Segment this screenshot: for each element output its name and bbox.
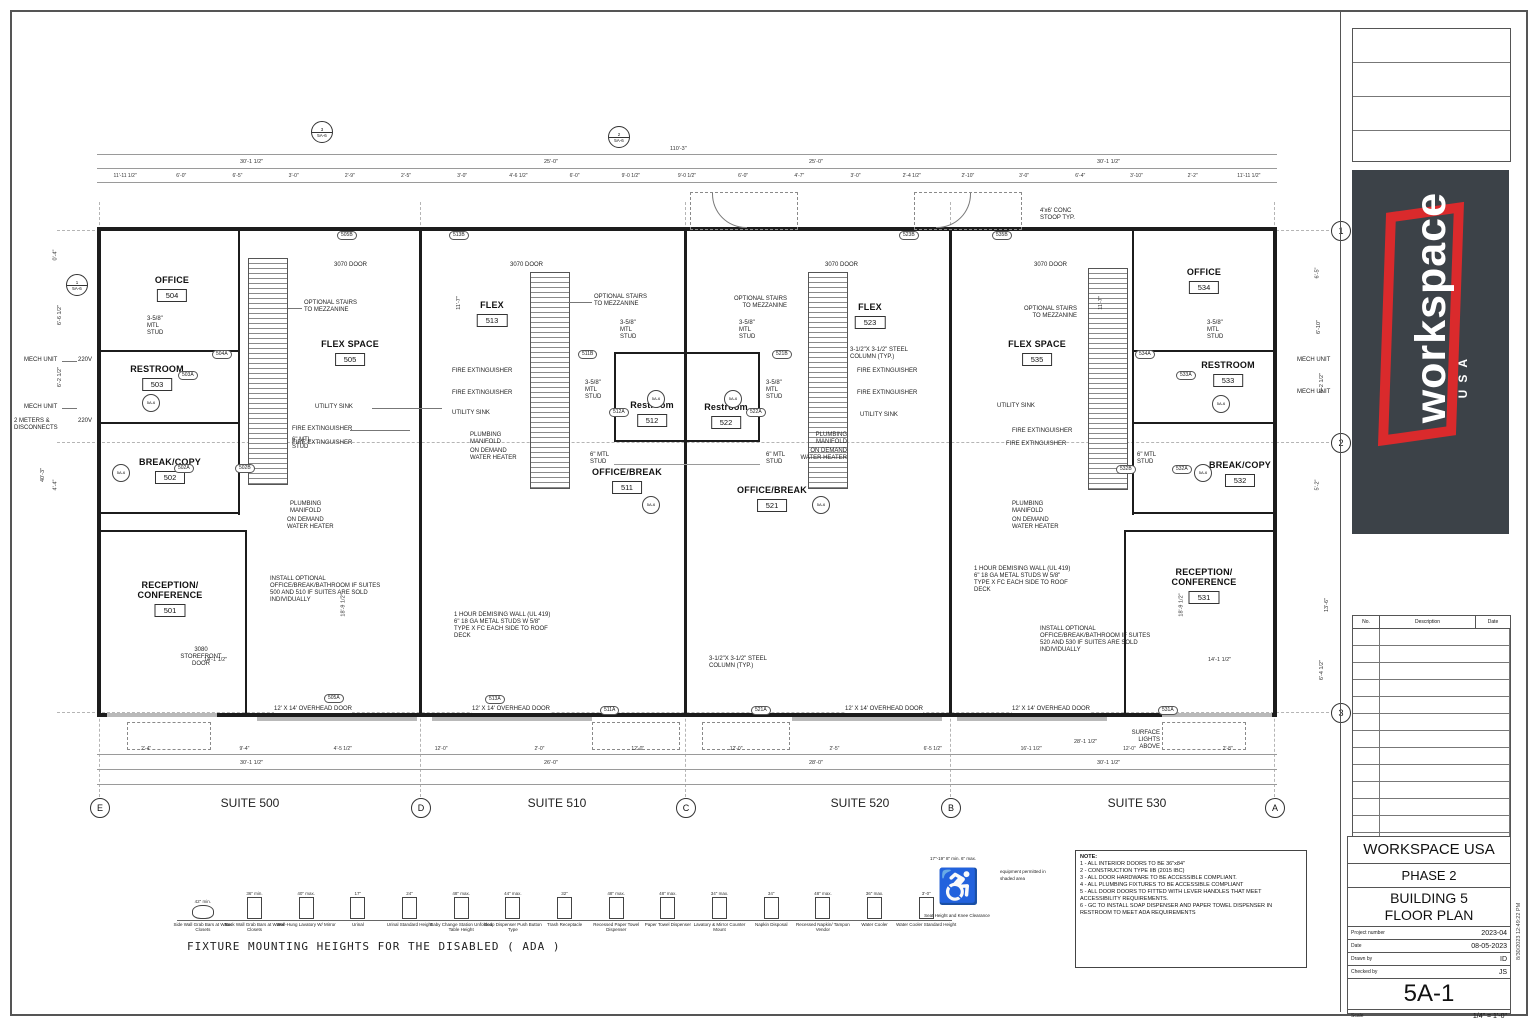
ada-fixture-dim: 40" max. [280,891,332,896]
callout-mtl-stud: 3-5/8" MTL STUD [1207,320,1223,341]
fixture-icon [867,897,882,919]
room-flexspace-535: FLEX SPACE 535 [1008,339,1066,367]
room-number: 535 [1022,353,1053,366]
room-number: 505 [335,353,366,366]
dim-bottom-tier2: 30'-1 1/2" [240,760,263,766]
dim-interior: 18'-9 1/2" [1179,593,1185,616]
room-name: RESTROOM [130,364,184,374]
field-value: ID [1500,956,1507,963]
demising-wall-b [949,227,952,715]
fixture-icon [815,897,830,919]
ada-fixture: 24" Urinal Standard Height [384,891,436,920]
callout-mech-unit: MECH UNIT [1297,389,1333,396]
section-marker-1: 1 5A-6 [66,274,88,296]
dim-bottom-tier2: 30'-1 1/2" [1097,760,1120,766]
dim-left: 6'-2 1/2" [57,367,63,387]
door-tag: 513A [485,695,505,704]
dim-line [97,769,1277,770]
elevation-marker: 5A-6 [812,496,830,514]
elevation-marker: 5A-6 [1212,395,1230,413]
room-number: 511 [612,481,642,494]
stamp-row [1353,131,1510,164]
section-sheet-ref: 5A-6 [67,286,87,291]
sheet-title-line2: FLOOR PLAN [1348,907,1510,924]
revision-row [1353,765,1510,782]
fixture-icon [660,897,675,919]
revision-row [1353,646,1510,663]
dim-value: 12'-0" [392,746,490,752]
callout-mtl-stud: 3-5/8" MTL STUD [147,316,163,337]
callout-fire-extinguisher: FIRE EXTINGUISHER [452,390,512,397]
dim-value: 3'-0" [827,173,883,179]
callout-mtl-stud-6: 6" MTL STUD [766,452,785,466]
door-tag: 505A [324,694,344,703]
fixture-icon [247,897,262,919]
grid-bubble-col-B: B [941,798,961,818]
dim-value: 2'-5" [378,173,434,179]
field-value: 1/4" = 1'-0" [1473,1013,1507,1020]
callout-mtl-stud: 3-5/8" MTL STUD [766,380,782,401]
dim-right: 13'-6" [1324,598,1330,612]
callout-water-heater: ON DEMAND WATER HEATER [1012,517,1059,531]
stamp-row [1353,63,1510,97]
callout-water-heater: ON DEMAND WATER HEATER [794,448,847,462]
leader-line [62,408,77,409]
dim-value: 3'-10" [1108,173,1164,179]
fixture-icon [505,897,520,919]
field-value: 2023-04 [1481,930,1507,937]
room-number: 501 [155,604,186,617]
room-name: FLEX [477,300,508,310]
door-tag: 511A [600,706,619,715]
room-name: OFFICE [155,275,189,285]
overhead-door-seg [257,717,417,721]
dim-value: 3'-0" [266,173,322,179]
room-flex-513: FLEX 513 [477,300,508,328]
dim-value: 4'-5 1/2" [294,746,392,752]
ada-fixture-dim: 48" max. [590,891,642,896]
callout-mtl-stud-6: 6" MTL STUD [590,452,609,466]
dim-left: 4'-4" [52,480,58,491]
room-officebreak-511: OFFICE/BREAK 511 [592,467,662,495]
fixture-icon [454,897,469,919]
dim-value: 6'-5" [209,173,265,179]
callout-3070-door: 3070 DOOR [334,262,367,269]
dim-value: 12'-0" [687,746,785,752]
callout-overhead-door: 12' X 14' OVERHEAD DOOR [274,706,352,713]
door-tag: 521A [751,706,771,715]
general-notes-box: NOTE: 1 - ALL INTERIOR DOORS TO BE 36"x8… [1075,850,1307,968]
company-logo: workspace USA [1352,170,1509,534]
elev-ref: 5A-6 [1195,471,1211,476]
sheet-title: BUILDING 5 FLOOR PLAN [1348,888,1510,927]
room-name: FLEX [855,302,886,312]
field-label: Project number [1351,930,1385,936]
door-tag: 523B [899,231,919,240]
callout-3070-door: 3070 DOOR [1034,262,1067,269]
sheet-title-line1: BUILDING 5 [1348,890,1510,907]
door-tag: 521B [772,350,792,359]
room-restroom-503: RESTROOM 503 [130,364,184,392]
dim-value: 2'-4" [97,746,195,752]
room-number: 503 [142,378,173,391]
dim-overall-top: 110'-3" [670,146,687,152]
dim-value: 6'-4" [1052,173,1108,179]
revision-row [1353,663,1510,680]
revision-row [1353,680,1510,697]
ada-fixture-label: Water Cooler Standard Height [894,922,958,927]
fixture-icon [350,897,365,919]
callout-3070-door: 3070 DOOR [802,262,858,269]
ada-fixture: 42" min. Side Wall Grab Bars at Water Cl… [177,899,229,920]
callout-mtl-stud: 3-5/8" MTL STUD [585,380,601,401]
counter-line [614,464,760,465]
elevation-marker: 5A-6 [1194,464,1212,482]
stairs-suite-510 [530,272,570,489]
ada-fixture-dim: 42" min. [177,899,229,904]
note-item: 2 - CONSTRUCTION TYPE IIB (2015 IBC) [1080,868,1302,875]
callout-install-optional: INSTALL OPTIONAL OFFICE/BREAK/BATHROOM I… [270,576,395,604]
dim-line [97,168,1277,169]
room-name: FLEX SPACE [1008,339,1066,349]
dim-tier2: 30'-1 1/2" [1097,159,1120,165]
door-tag: 503A [178,371,198,380]
ada-fixture-dim: 44" max. [487,891,539,896]
dim-value: 2'-9" [322,173,378,179]
dim-interior: 14'-1 1/2" [1208,657,1231,663]
ada-fixture: 40" max. Wall-Hung Lavatory W/ Mirror [280,891,332,920]
field-checked-by: Checked by JS [1348,966,1510,979]
callout-mech-unit: MECH UNIT [24,404,60,411]
door-tag: 513B [449,231,469,240]
door-tag: 522A [746,408,766,417]
elev-ref: 5A-6 [648,397,664,402]
dim-right: 6'-5" [1314,268,1320,279]
field-date: Date 08-05-2023 [1348,940,1510,953]
callout-plumbing-manifold: PLUMBING MANIFOLD [470,432,501,446]
dim-left: 0'-4" [52,250,58,261]
dim-row-bottom-sub: 2'-4"9'-4"4'-5 1/2"12'-0"2'-0"12'-0"12'-… [97,746,1277,752]
callout-steel-column: 3-1/2"X 3-1/2" STEEL COLUMN (TYP.) [850,347,908,361]
ada-fixture-dim: 36" min. [229,891,281,896]
elevation-marker: 5A-6 [112,464,130,482]
elev-ref: 5A-6 [113,471,129,476]
fixture-icon [299,897,314,919]
rev-col-date: Date [1476,616,1510,628]
dim-value: 11'-11 1/2" [97,173,153,179]
section-marker-2: 2 5A-6 [608,126,630,148]
room-number: 534 [1189,281,1220,294]
section-sheet-ref: 5A-6 [312,133,332,138]
overhead-door-seg [432,717,592,721]
elev-ref: 5A-6 [1213,402,1229,407]
revision-row [1353,714,1510,731]
ada-fixture-dim: 17" [332,891,384,896]
door-tag: 534A [1135,350,1155,359]
room-number: 523 [855,316,886,329]
revision-row [1353,731,1510,748]
dim-value: 4'-6 1/2" [490,173,546,179]
dim-value: 6'-0" [153,173,209,179]
door-tag: 505B [337,231,357,240]
elev-ref: 5A-6 [643,503,659,508]
callout-220v: 220V [78,357,92,364]
callout-utility-sink: UTILITY SINK [860,412,898,419]
revision-row [1353,697,1510,714]
callout-plumbing-manifold: PLUMBING MANIFOLD [802,432,847,446]
dim-left: 6'-6 1/2" [57,305,63,325]
door-tag: 532A [1172,465,1192,474]
revision-row [1353,799,1510,816]
callout-water-heater: ON DEMAND WATER HEATER [287,517,334,531]
ada-fixture: 48" max. Baby Change Station Unfolded Ta… [435,891,487,920]
dim-value: 3'-0" [996,173,1052,179]
dim-value: 11'-11 1/2" [1221,173,1277,179]
dim-bottom-tier2: 26'-0" [544,760,558,766]
callout-mtl-stud-6: 6" MTL STUD [292,437,311,451]
grid-bubble-col-C: C [676,798,696,818]
ada-fixture-dim: 34" [745,891,797,896]
ada-fixture: 34" max. Lavatory & Mirror Counter Mount [694,891,746,920]
door-tag: 531A [1158,706,1178,715]
stamp-row [1353,97,1510,131]
dim-tier2: 25'-0" [544,159,558,165]
callout-overhead-door: 12' X 14' OVERHEAD DOOR [472,706,550,713]
room-officebreak-521: OFFICE/BREAK 521 [737,485,807,513]
dim-interior: 11'-7" [456,296,462,310]
ada-fixture: 48" max. Recessed Napkin/ Tampon Vendor [797,891,849,920]
suite-label-510: SUITE 510 [528,796,587,810]
dim-value: 9'-0 1/2" [659,173,715,179]
dim-value: 3'-0" [434,173,490,179]
callout-overhead-door: 12' X 14' OVERHEAD DOOR [1012,706,1090,713]
door-tag: 502A [174,464,194,473]
dim-line [97,754,1277,755]
room-number: 504 [157,289,188,302]
wall-left [97,227,101,717]
callout-fire-extinguisher: FIRE EXTINGUISHER [857,368,917,375]
suite-label-520: SUITE 520 [831,796,890,810]
revision-row [1353,816,1510,833]
dim-value: 2'-8" [1179,746,1277,752]
leader-line [62,361,77,362]
callout-mech-unit: MECH UNIT [24,357,60,364]
room-flexspace-505: FLEX SPACE 505 [321,339,379,367]
ada-fixture-dim: 48" max. [435,891,487,896]
callout-steel-column: 3-1/2"X 3-1/2" STEEL COLUMN (TYP.) [709,656,767,670]
ada-fixture: 17" Urinal [332,891,384,920]
notes-title: NOTE: [1080,854,1302,861]
door-tag: 511B [578,350,597,359]
elev-ref: 5A-6 [143,401,159,406]
grid-bubble-col-A: A [1265,798,1285,818]
elev-ref: 5A-6 [725,397,741,402]
room-restroom-533: RESTROOM 533 [1201,360,1255,388]
room-name: BREAK/COPY [1209,460,1271,470]
ada-fixture-dim: 34" max. [694,891,746,896]
callout-fire-extinguisher: FIRE EXTINGUISHER [452,368,512,375]
room-name: OFFICE/BREAK [737,485,807,495]
ada-fixture: 32" Trash Receptacle [539,891,591,920]
dim-value: 9'-0 1/2" [603,173,659,179]
wall-int [614,352,616,442]
ada-fixture: 48" max. Recessed Paper Towel Dispenser [590,891,642,920]
callout-mtl-stud-6: 6" MTL STUD [1137,452,1156,466]
sheet-number: 5A-1 [1348,979,1510,1010]
firm-name: WORKSPACE USA [1348,837,1510,864]
room-name: OFFICE [1187,267,1221,277]
fixture-icon [764,897,779,919]
callout-utility-sink: UTILITY SINK [315,404,353,411]
wall-int [614,352,760,354]
callout-fire-extinguisher: FIRE EXTINGUISHER [1006,441,1066,448]
suite-label-530: SUITE 530 [1108,796,1167,810]
dim-left: 40'-3" [40,468,46,482]
section-sheet-ref: 5A-6 [609,138,629,143]
callout-3070-door: 3070 DOOR [510,262,543,269]
callout-water-heater: ON DEMAND WATER HEATER [470,448,517,462]
dim-value: 2'-10" [940,173,996,179]
ada-fixture: 44" max. Soap Dispenser Push Button Type [487,891,539,920]
leader-line [288,308,302,309]
callout-optional-stairs: OPTIONAL STAIRS TO MEZZANINE [717,296,787,310]
dim-interior: 11'-7" [1098,296,1104,310]
room-number: 512 [637,414,668,427]
wheelchair-icon: ♿ [937,867,979,907]
callout-mtl-stud: 3-5/8" MTL STUD [620,320,636,341]
stamp-box [1352,28,1511,162]
dim-value: 2'-5" [785,746,883,752]
note-item: 5 - ALL DOOR DOORS TO FITTED WITH LEVER … [1080,889,1302,903]
fixture-icon [609,897,624,919]
dim-right: 6'-4 1/2" [1319,660,1325,680]
ada-fixture-dim: 24" [384,891,436,896]
elevation-marker: 5A-6 [724,390,742,408]
callout-fire-extinguisher: FIRE EXTINGUISHER [1012,428,1072,435]
fixture-icon [192,905,214,919]
wall-int [1132,422,1277,424]
dim-right: 6'-2 1/2" [1319,373,1325,393]
ada-fixture: 48" max. Paper Towel Dispenser [642,891,694,920]
room-name: OFFICE/BREAK [592,467,662,477]
ada-fixture-strip: 42" min. Side Wall Grab Bars at Water Cl… [177,844,952,921]
callout-220v: 220V [78,418,92,425]
wall-int [97,530,247,532]
callout-overhead-door: 12' X 14' OVERHEAD DOOR [845,706,923,713]
room-breakcopy-532: BREAK/COPY 532 [1209,460,1271,488]
field-scale: Scale 1/4" = 1'-0" [1348,1010,1510,1022]
ada-fixture-dim: 48" max. [797,891,849,896]
ada-fixture: 36" max. Water Cooler [849,891,901,920]
dim-value: 16'-1 1/2" [982,746,1080,752]
callout-mech-unit: MECH UNIT [1297,357,1333,364]
field-value: 08-05-2023 [1471,943,1507,950]
dim-value: 6'-5 1/2" [884,746,982,752]
dim-value: 4'-7" [771,173,827,179]
wall-int [1132,512,1277,514]
ada-wheelchair-label: Seat Height and Knee Clearance [917,912,997,919]
callout-plumbing-manifold: PLUMBING MANIFOLD [1012,501,1043,515]
callout-optional-stairs: OPTIONAL STAIRS TO MEZZANINE [1007,306,1077,320]
wall-int [758,352,760,442]
wall-int [97,422,240,424]
dim-value: 6'-0" [547,173,603,179]
wall-int [1124,530,1277,532]
ada-fixture-dim: 32" [539,891,591,896]
revision-row [1353,782,1510,799]
callout-fire-extinguisher: FIRE EXTINGUISHER [292,426,352,433]
dim-row-top-sub: 11'-11 1/2"6'-0"6'-5"3'-0"2'-9"2'-5"3'-0… [97,173,1277,179]
ada-fixture-dim: 48" max. [642,891,694,896]
grid-bubble-col-E: E [90,798,110,818]
field-label: Scale [1351,1013,1364,1019]
room-name: RECEPTION/ CONFERENCE [1171,567,1236,587]
room-number: 522 [711,416,742,429]
leader-line [372,408,442,409]
stairs-suite-500 [248,258,288,485]
note-item: 4 - ALL PLUMBING FIXTURES TO BE ACCESSIB… [1080,882,1302,889]
wall-right [1273,227,1277,717]
ada-caption: FIXTURE MOUNTING HEIGHTS FOR THE DISABLE… [187,940,561,953]
dim-value: 2'-0" [490,746,588,752]
rev-col-no: No. [1353,616,1380,628]
dim-value: 9'-4" [195,746,293,752]
dim-bottom-tier2: 28'-0" [809,760,823,766]
wall-top [97,227,1277,231]
door-tag: 532B [1116,465,1136,474]
revision-table-header: No. Description Date [1353,616,1510,629]
note-item: 1 - ALL INTERIOR DOORS TO BE 36"x84" [1080,861,1302,868]
room-number: 513 [477,314,508,327]
callout-mtl-stud: 3-5/8" MTL STUD [739,320,755,341]
dim-right: 5'-2" [1314,480,1320,491]
callout-conc-stoop: 4'x6' CONC STOOP TYP. [1040,208,1075,222]
elevation-marker: 5A-6 [642,496,660,514]
door-tag: 504A [212,350,232,359]
callout-fire-extinguisher: FIRE EXTINGUISHER [857,390,917,397]
ada-fixture: 36" min. Back Wall Grab Bars at Water Cl… [229,891,281,920]
title-block-column: workspace USA No. Description Date WORKS… [1340,10,1515,1012]
callout-optional-stairs: OPTIONAL STAIRS TO MEZZANINE [304,300,374,314]
revision-row [1353,748,1510,765]
overhead-door-seg [957,717,1107,721]
room-flex-523: FLEX 523 [855,302,886,330]
dim-interior: 14'-1 1/2" [204,657,227,663]
elevation-marker: 5A-6 [647,390,665,408]
dim-value: 6'-0" [715,173,771,179]
ada-fixture: 34" Napkin Disposal [745,891,797,920]
ada-wheelchair-note: equipment permitted in shaded area [1000,868,1058,882]
demising-wall-d [419,227,422,715]
overhead-door-seg [792,717,942,721]
room-number: 533 [1213,374,1244,387]
revision-row [1353,629,1510,646]
fixture-icon [557,897,572,919]
callout-demising-wall: 1 HOUR DEMISING WALL (UL 419) 6" 18 GA M… [974,566,1086,594]
suite-label-500: SUITE 500 [221,796,280,810]
field-label: Checked by [1351,969,1377,975]
dim-line [97,154,1277,155]
note-item: 6 - GC TO INSTALL SOAP DISPENSER AND PAP… [1080,903,1302,917]
room-name: FLEX SPACE [321,339,379,349]
project-phase: PHASE 2 [1348,864,1510,888]
stairs-suite-530 [1088,268,1128,490]
room-restroom-522: Restroom 522 [704,402,748,430]
rev-col-description: Description [1380,616,1476,628]
storefront-glazing [1162,713,1272,717]
grid-bubble-col-D: D [411,798,431,818]
leader-line [568,302,592,303]
